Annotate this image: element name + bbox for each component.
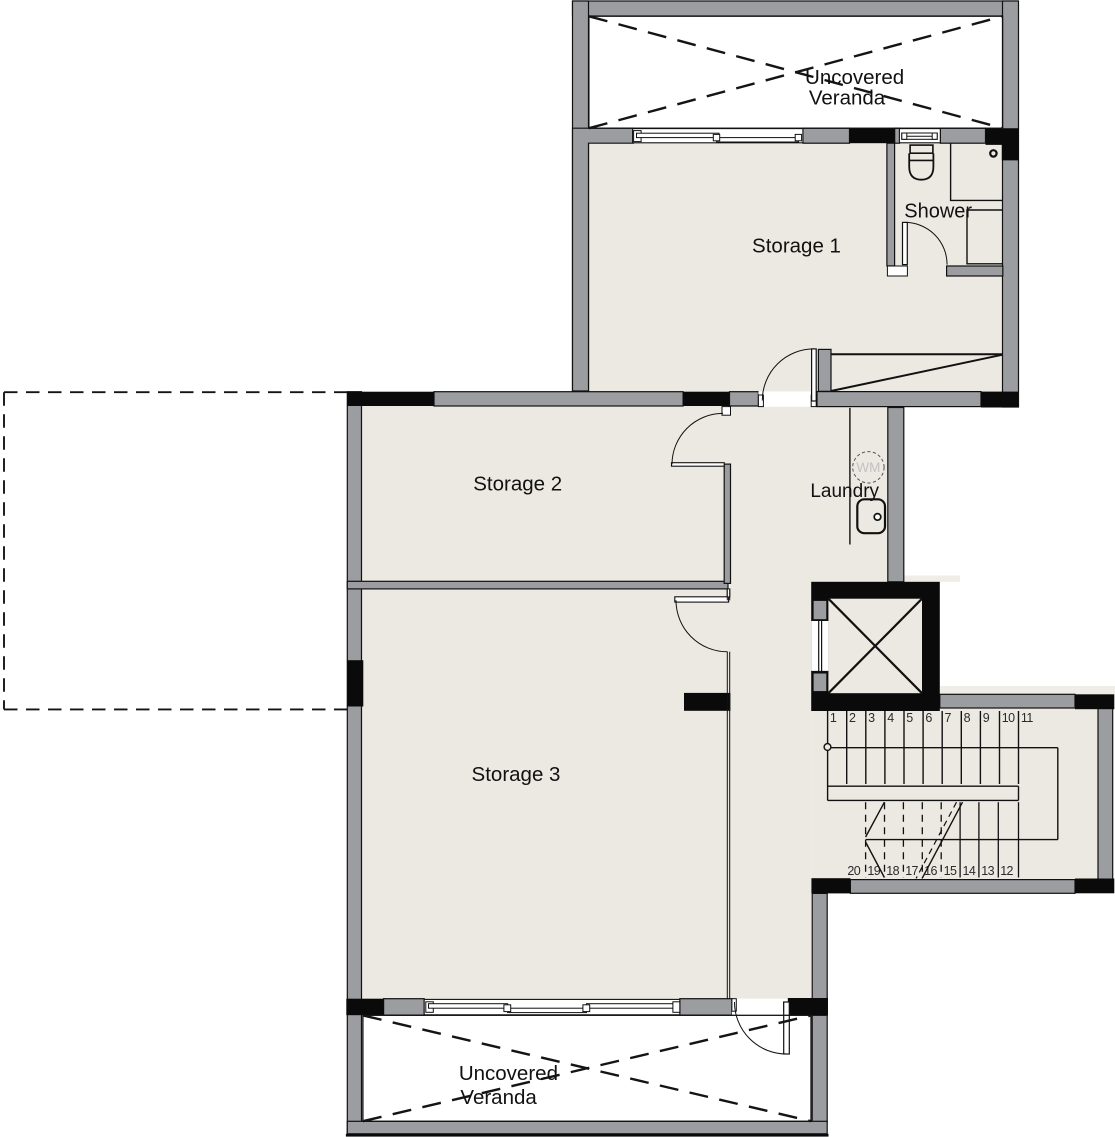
svg-text:9: 9 (983, 711, 990, 725)
svg-text:13: 13 (981, 864, 994, 878)
svg-text:Storage 3: Storage 3 (472, 763, 561, 786)
svg-text:2: 2 (849, 711, 856, 725)
svg-text:5: 5 (906, 711, 913, 725)
svg-text:20: 20 (847, 864, 860, 878)
svg-text:Veranda: Veranda (809, 87, 886, 110)
svg-text:Veranda: Veranda (460, 1086, 537, 1109)
svg-text:12: 12 (1000, 864, 1013, 878)
svg-text:Storage 1: Storage 1 (752, 234, 841, 257)
svg-text:Storage 2: Storage 2 (473, 473, 562, 496)
svg-text:14: 14 (963, 864, 976, 878)
svg-text:17: 17 (905, 864, 918, 878)
svg-text:10: 10 (1002, 711, 1015, 725)
svg-text:8: 8 (964, 711, 971, 725)
svg-text:Laundry: Laundry (810, 481, 879, 502)
svg-text:15: 15 (944, 864, 957, 878)
svg-text:WM: WM (856, 460, 880, 475)
svg-text:Shower: Shower (904, 201, 972, 223)
svg-text:4: 4 (887, 711, 894, 725)
svg-text:Uncovered: Uncovered (459, 1062, 558, 1085)
svg-text:7: 7 (945, 711, 952, 725)
svg-text:Uncovered: Uncovered (805, 66, 904, 89)
svg-text:6: 6 (925, 711, 932, 725)
svg-text:11: 11 (1021, 711, 1033, 725)
svg-text:18: 18 (886, 864, 899, 878)
svg-text:3: 3 (868, 711, 875, 725)
svg-text:1: 1 (830, 711, 837, 725)
